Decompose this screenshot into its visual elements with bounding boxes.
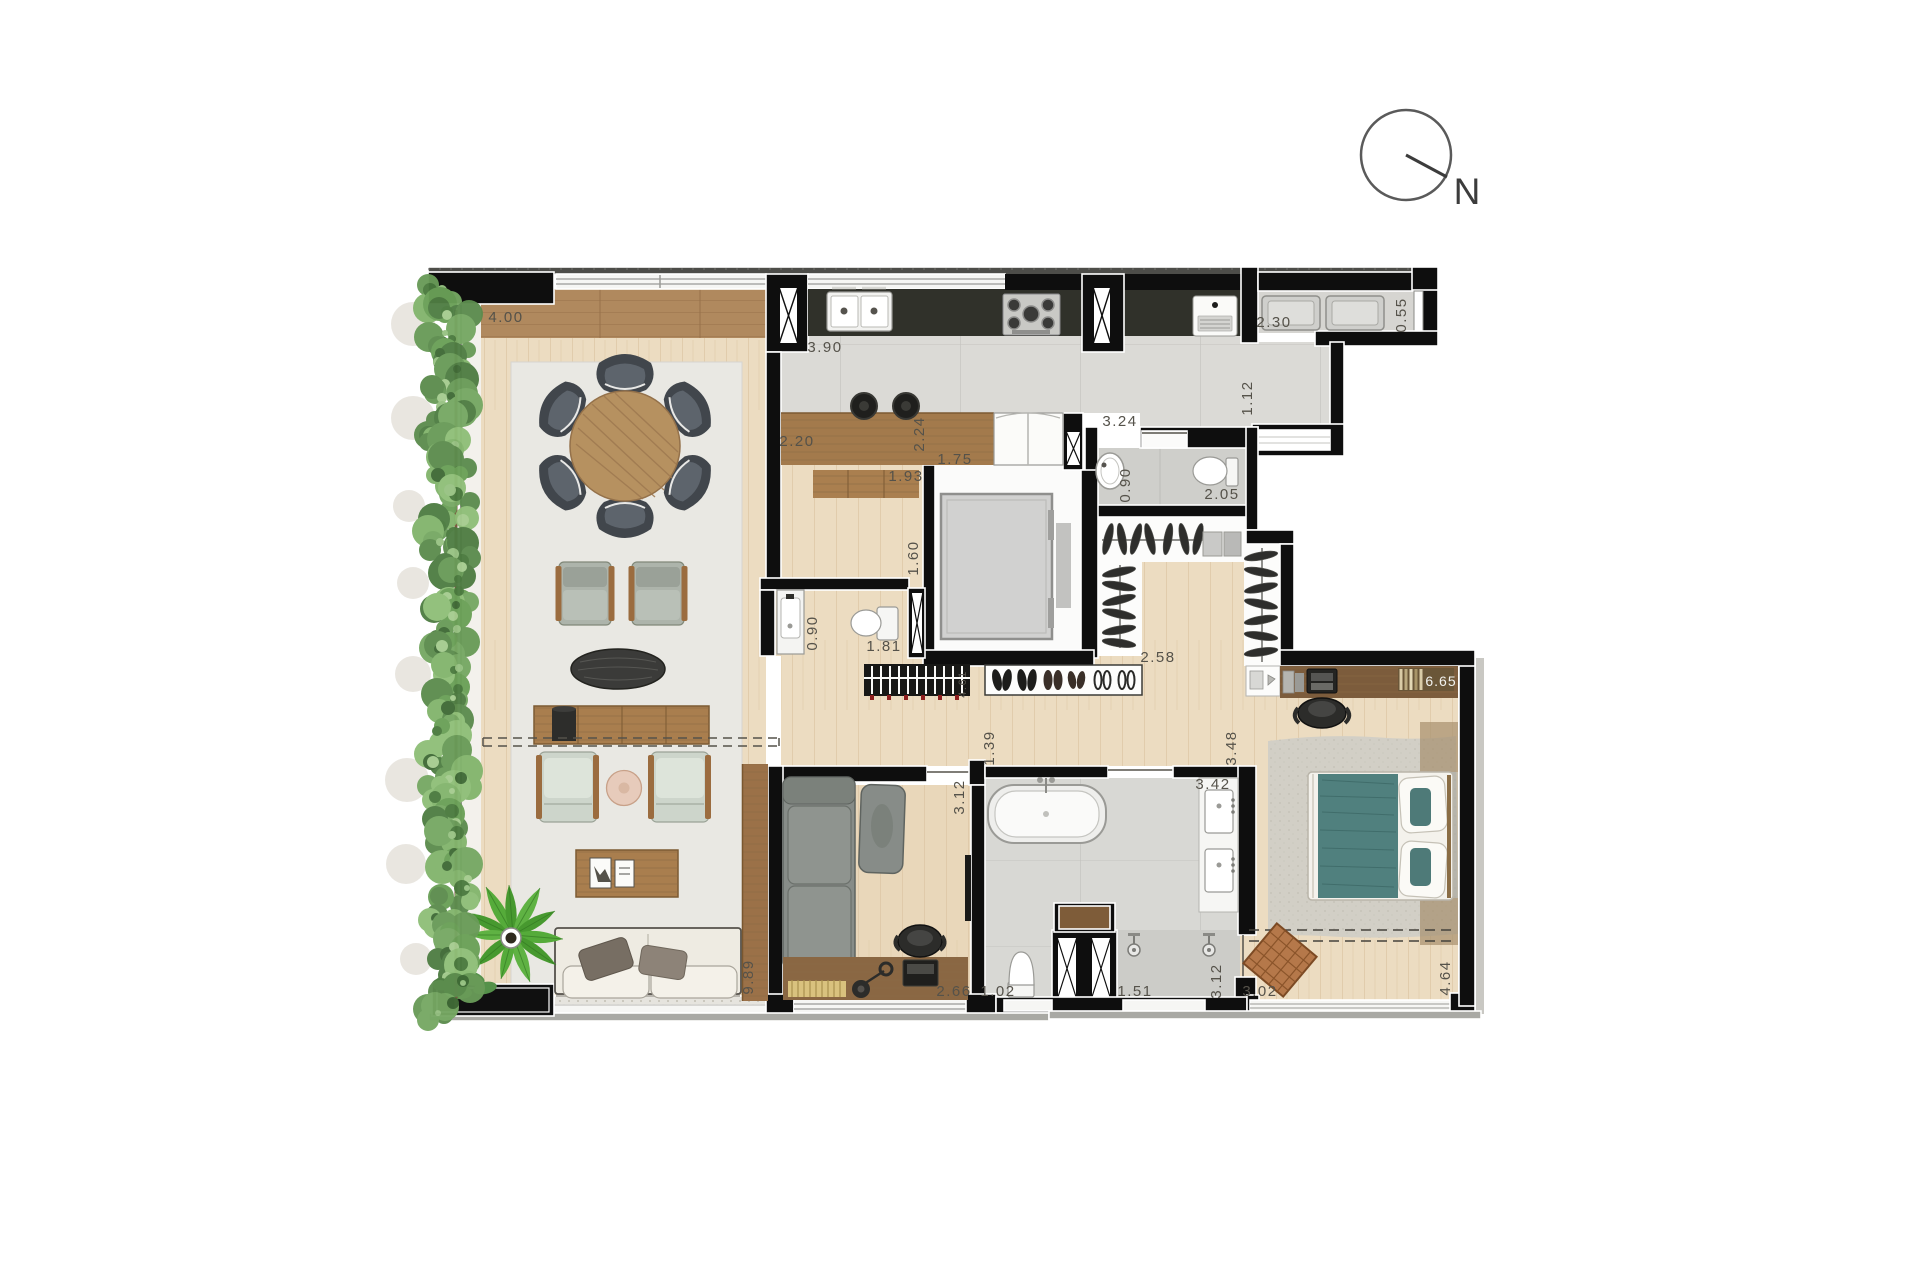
svg-text:1.02: 1.02 [980,983,1015,1000]
svg-text:9.89: 9.89 [740,959,757,994]
svg-text:0.55: 0.55 [1393,297,1410,332]
svg-text:3.42: 3.42 [1195,776,1230,793]
svg-text:1.39: 1.39 [981,730,998,765]
svg-text:0.90: 0.90 [1117,467,1134,502]
svg-text:3.48: 3.48 [1223,730,1240,765]
svg-text:4.61: 4.61 [957,670,969,697]
svg-text:1.75: 1.75 [937,451,972,468]
svg-text:3.12: 3.12 [1208,963,1225,998]
svg-text:4.64: 4.64 [1437,960,1454,995]
svg-text:1.81: 1.81 [866,638,901,655]
svg-text:1.60: 1.60 [905,540,922,575]
svg-text:2.66: 2.66 [936,983,971,1000]
svg-text:6.65: 6.65 [1425,673,1456,689]
svg-text:0.90: 0.90 [804,615,821,650]
svg-text:2.30: 2.30 [1256,314,1291,331]
svg-text:2.05: 2.05 [1204,486,1239,503]
svg-text:4.00: 4.00 [488,309,523,326]
svg-text:2.20: 2.20 [779,433,814,450]
svg-text:1.51: 1.51 [1117,983,1152,1000]
svg-text:2.58: 2.58 [1140,649,1175,666]
svg-text:3.90: 3.90 [807,339,842,356]
svg-text:1.12: 1.12 [1239,380,1256,415]
svg-text:N: N [1454,171,1481,212]
svg-text:1.93: 1.93 [888,468,923,485]
svg-text:3.02: 3.02 [1242,983,1277,1000]
svg-text:2.24: 2.24 [911,416,928,451]
svg-text:3.24: 3.24 [1102,413,1137,430]
svg-text:3.12: 3.12 [951,779,968,814]
